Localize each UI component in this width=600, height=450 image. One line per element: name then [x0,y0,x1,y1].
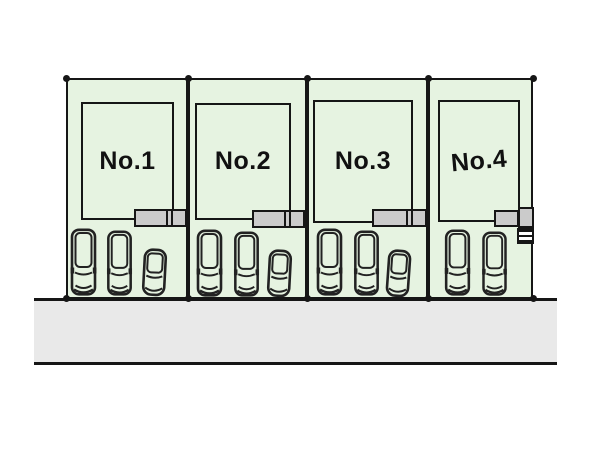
porch-divider [411,210,414,226]
porch-divider [166,210,169,226]
building-no1: No.1 [81,102,174,220]
porch-divider [289,211,292,227]
car-van-icon [481,231,508,298]
porch-divider [171,210,174,226]
lot-label-no1: No.1 [99,147,155,176]
site-plan-diagram: No.1 No.2 No.3 No.4 [0,0,600,450]
boundary-dot [425,295,432,302]
car-van-icon [316,228,343,298]
car-compact-icon [266,248,294,298]
boundary-dot [530,75,537,82]
stair-steps [519,230,532,242]
building-no4: No.4 [438,100,520,222]
car-van-icon [106,230,133,298]
car-van-icon [70,228,97,298]
porch-no2 [252,210,305,228]
building-no3: No.3 [313,100,413,223]
boundary-dot [425,75,432,82]
porch-side-no4 [518,207,534,228]
lot-label-no3: No.3 [335,147,391,176]
road [34,298,557,365]
car-van-icon [196,229,223,299]
lot-label-no4: No.4 [450,144,509,178]
boundary-dot [304,75,311,82]
porch-no4 [494,210,519,227]
car-compact-icon [384,248,412,299]
car-van-icon [353,230,380,298]
boundary-dot [185,295,192,302]
porch-no3 [372,209,427,227]
porch-divider [284,211,287,227]
porch-no1 [134,209,187,227]
boundary-dot [63,75,70,82]
building-no2: No.2 [195,103,291,220]
car-compact-icon [141,247,169,297]
stairs-icon [517,228,534,244]
lot-label-no2: No.2 [215,147,271,176]
boundary-dot [304,295,311,302]
boundary-dot [185,75,192,82]
car-van-icon [233,231,260,299]
boundary-dot [530,295,537,302]
porch-divider [406,210,409,226]
car-van-icon [444,229,471,298]
boundary-dot [63,295,70,302]
